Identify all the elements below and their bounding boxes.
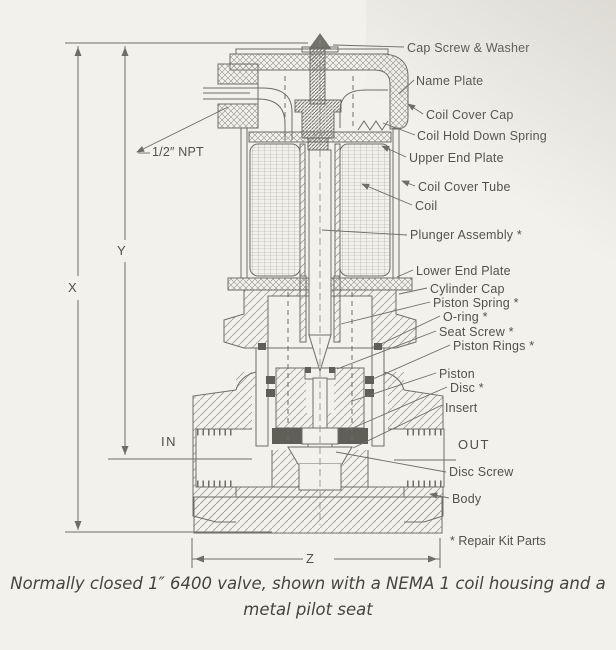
o-ring-right <box>374 343 382 350</box>
label-cylinder-cap: Cylinder Cap <box>430 282 505 296</box>
label-conduit-npt: 1/2″ NPT <box>152 145 204 159</box>
diagram-stage: Cap Screw & Washer Name Plate Coil Cover… <box>0 0 616 650</box>
piston-ring-left-1 <box>266 376 275 384</box>
piston-ring-left-2 <box>266 389 275 397</box>
label-lower-end-plate: Lower End Plate <box>416 264 511 278</box>
scan-shading <box>366 0 616 260</box>
port-label-out: OUT <box>458 437 490 452</box>
piston-ring-right-1 <box>365 376 374 384</box>
conduit-hub-upper <box>218 64 258 84</box>
plunger-top-plug <box>295 100 341 138</box>
label-disc: Disc * <box>450 381 484 395</box>
label-body: Body <box>452 492 481 506</box>
dim-label-z: Z <box>306 551 314 566</box>
repair-kit-footnote: * Repair Kit Parts <box>450 534 546 548</box>
disc-right <box>338 428 368 444</box>
label-piston-spring: Piston Spring * <box>433 296 519 310</box>
label-piston: Piston <box>439 367 475 381</box>
coil-left <box>250 144 300 276</box>
dim-label-y: Y <box>117 243 126 258</box>
cap-screw-stem <box>310 48 325 104</box>
label-insert: Insert <box>445 401 477 415</box>
conduit-hub-lower <box>218 104 258 128</box>
label-o-ring: O-ring * <box>443 310 488 324</box>
scanned-valve-diagram-page: { "page": { "caption": { "line1": "Norma… <box>0 0 616 650</box>
disc-left <box>272 428 302 444</box>
port-label-in: IN <box>161 434 177 449</box>
coil-cover-tube-left <box>241 128 247 278</box>
caption-line-2: metal pilot seat <box>0 600 616 619</box>
o-ring-left <box>258 343 266 350</box>
label-disc-screw: Disc Screw <box>449 465 514 479</box>
label-piston-rings: Piston Rings * <box>453 339 534 353</box>
label-seat-screw: Seat Screw * <box>439 325 514 339</box>
dim-label-x: X <box>68 280 77 295</box>
caption-line-1: Normally closed 1″ 6400 valve, shown wit… <box>0 574 616 593</box>
